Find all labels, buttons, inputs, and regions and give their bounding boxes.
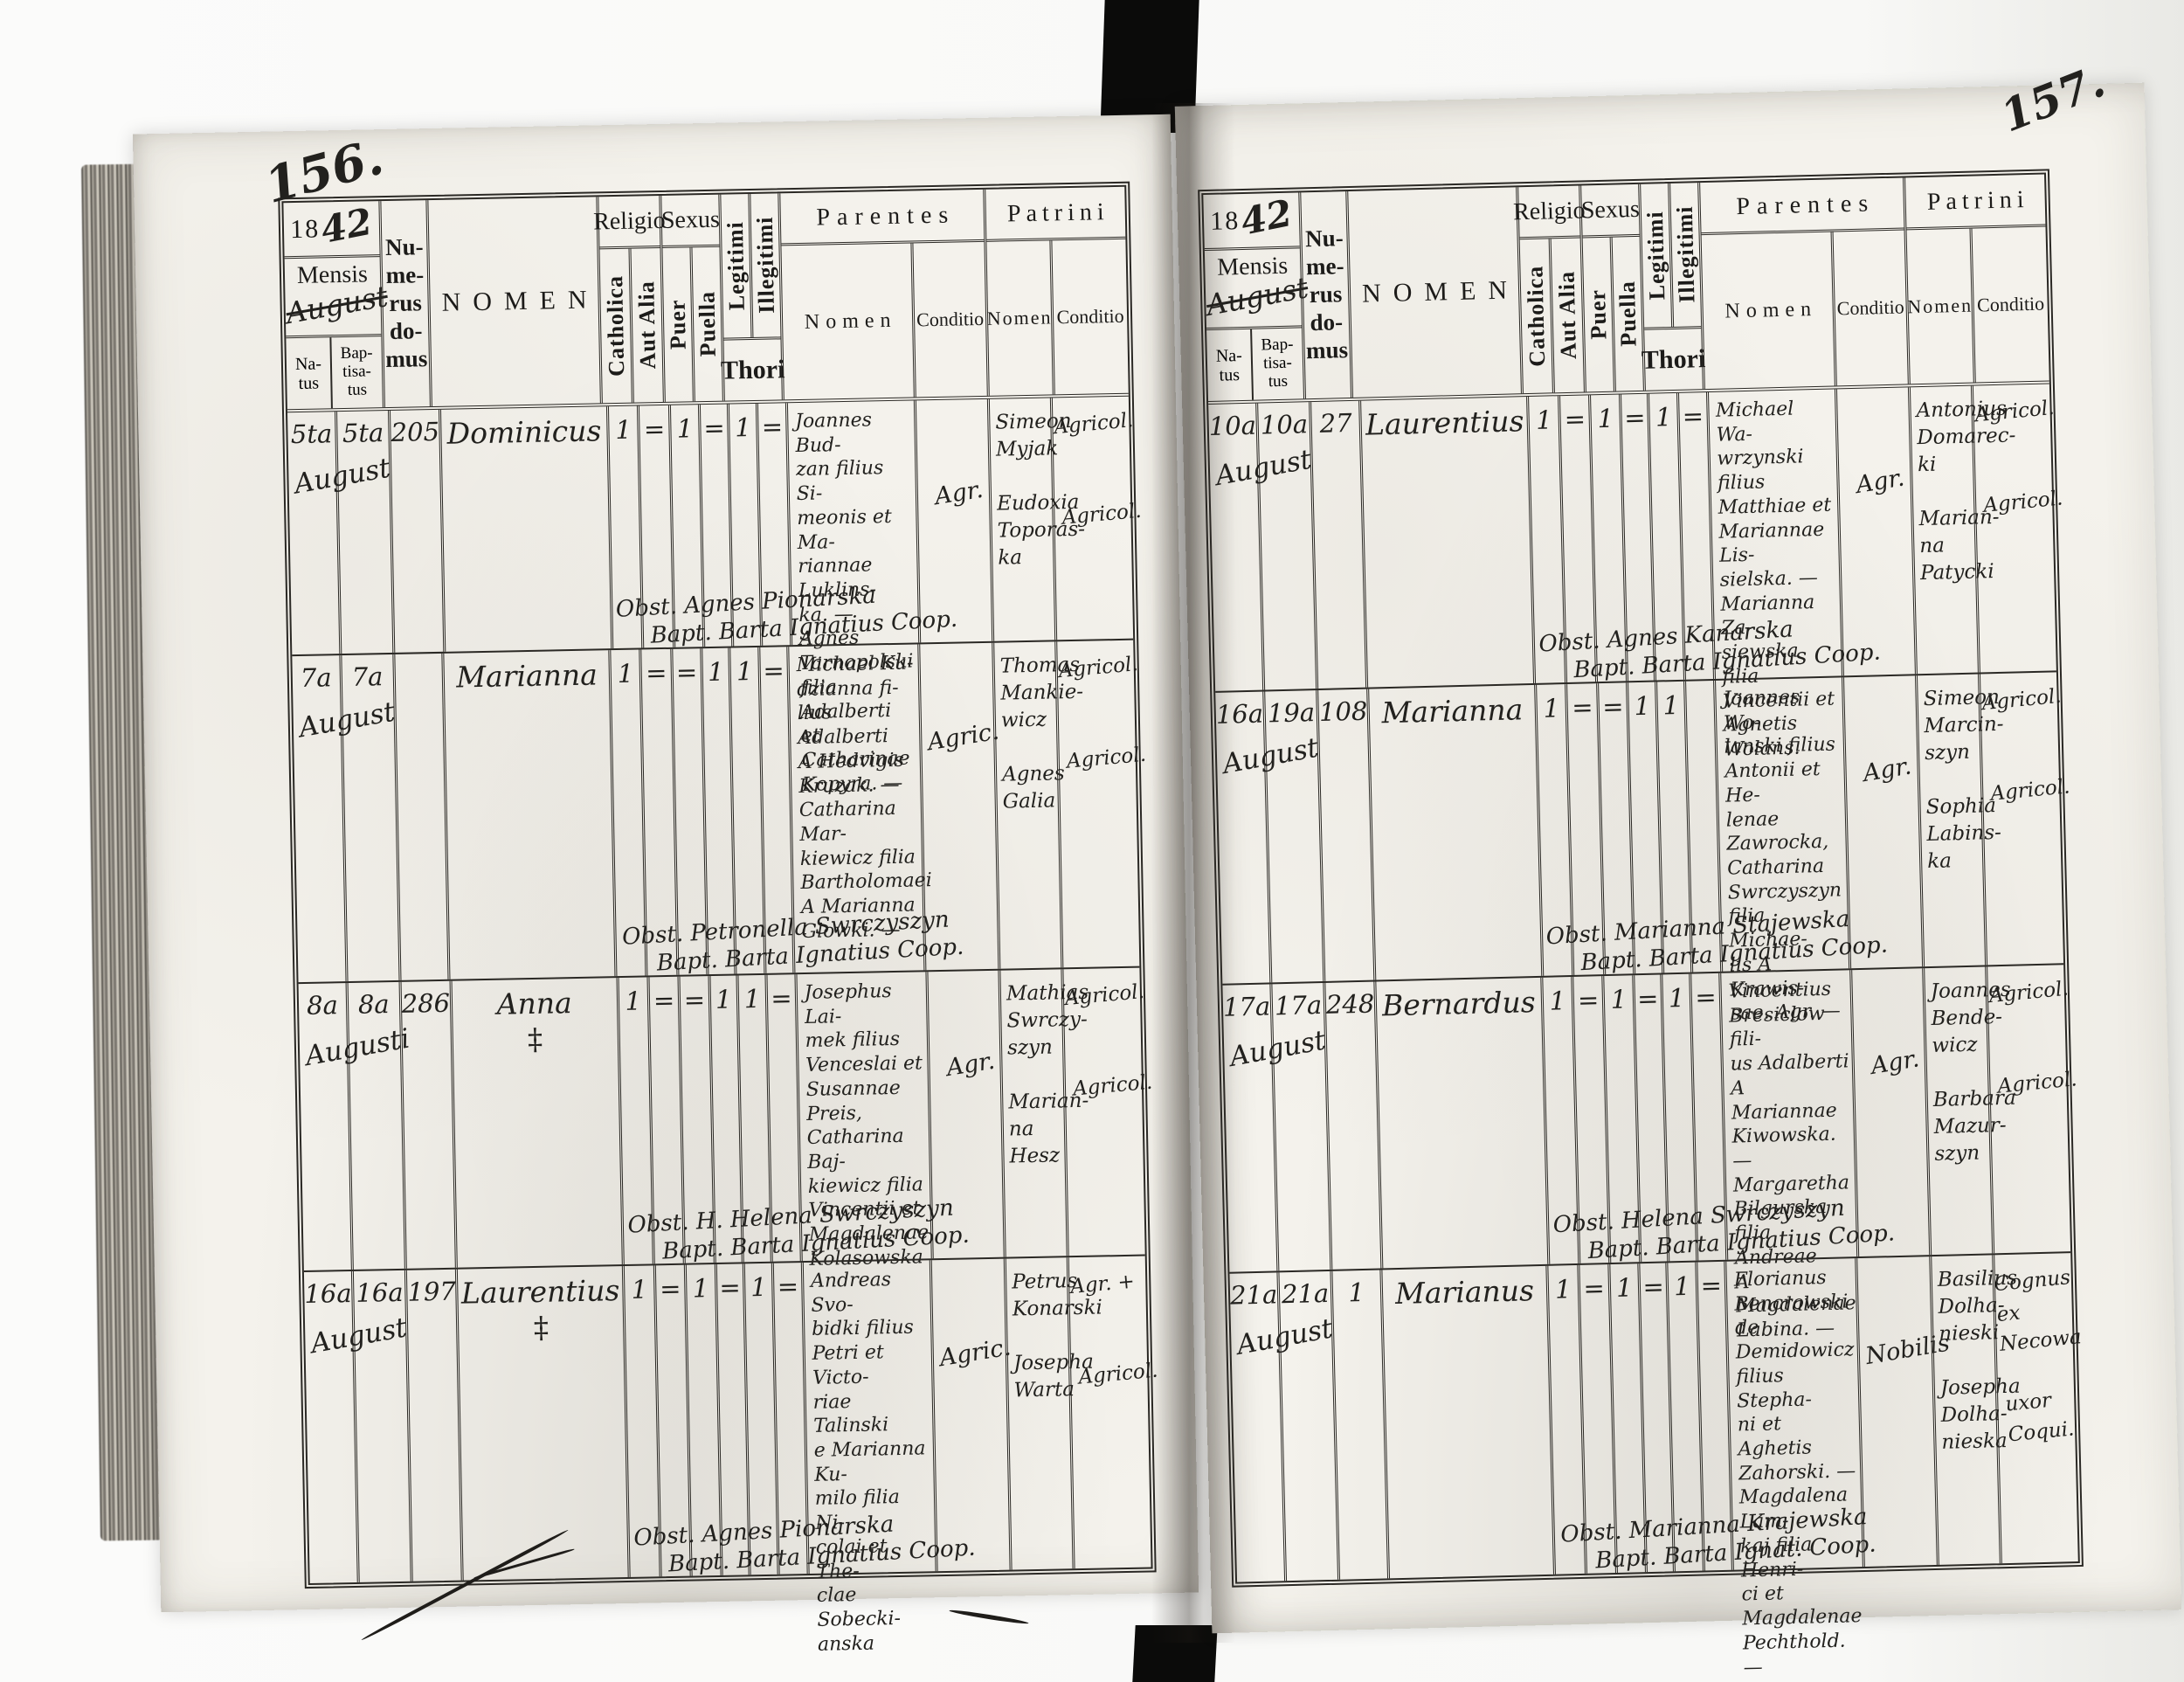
puer-mark: 1 bbox=[1610, 1263, 1638, 1303]
mensis-box: Mensis August bbox=[1205, 248, 1302, 328]
religio-label: Religio bbox=[598, 196, 660, 249]
puer-mark: = bbox=[1599, 682, 1628, 722]
legitimacy-subcolumns: Legitimi Illegitimi bbox=[1641, 183, 1701, 328]
natus-cell: 8a bbox=[299, 983, 351, 1270]
numerus-domus-cell: 27 bbox=[1309, 401, 1365, 689]
child-name: Marianus bbox=[1382, 1266, 1547, 1312]
legitimi-cell: Legitimi bbox=[721, 194, 750, 338]
numerus-domus-cell: 1 bbox=[1330, 1270, 1386, 1579]
aut-alia-mark: = bbox=[1560, 395, 1590, 434]
natus-label: Na- tus bbox=[1206, 329, 1254, 401]
puella-mark: = bbox=[1635, 975, 1661, 1014]
baptisatus-value: 8a bbox=[348, 982, 399, 1020]
patrini-conditio-cell: Cognus ex Necowa uxor Coqui. bbox=[1992, 1253, 2078, 1563]
parentes-conditio-value: Agr. bbox=[1830, 384, 1918, 502]
year-box: 18 42 bbox=[1203, 192, 1299, 251]
patrini-conditio-value: Cognus ex Necowa uxor Coqui. bbox=[1988, 1251, 2082, 1450]
nomen-cell: Marianus bbox=[1379, 1266, 1553, 1579]
natus-cell: 5ta bbox=[287, 412, 339, 654]
illegitimi-mark bbox=[1686, 681, 1713, 690]
parentes-conditio-label: Conditio bbox=[1831, 230, 1908, 385]
patrini-nomen-cell: Mathias Swrczy- szyn Marian- na Hesz bbox=[998, 969, 1066, 1256]
legitimi-label: Legitimi bbox=[722, 221, 750, 310]
natus-value: 16a bbox=[1215, 692, 1263, 730]
baptisatus-value: 16a bbox=[354, 1270, 405, 1308]
legitimi-mark: 1 bbox=[1649, 393, 1677, 433]
patrini-header-group: Patrini Nomen Conditio bbox=[1903, 175, 2049, 384]
legitimi-mark: 1 bbox=[1657, 682, 1685, 721]
numerus-domus-cell: 108 bbox=[1316, 689, 1373, 981]
illegitimi-mark: = bbox=[758, 403, 785, 442]
aut-alia-mark: = bbox=[1568, 683, 1598, 723]
natus-value: 5ta bbox=[287, 412, 335, 449]
nomen-cell: Anna ‡ bbox=[449, 978, 621, 1268]
illegitimi-mark: = bbox=[760, 647, 787, 686]
numerus-domus-value bbox=[395, 654, 442, 661]
patrini-header-group: Patrini Nomen Conditio bbox=[983, 187, 1129, 396]
parentes-nomen-label: Nomen bbox=[781, 243, 913, 399]
table-header: 18 42 Mensis August Na- tus Bap- tisa- t… bbox=[283, 187, 1128, 412]
table-row: 21a 21a 1 Marianus 1 = 1 = 1 = Fl bbox=[1229, 1251, 2077, 1582]
parentes-subcolumns: Nomen Conditio bbox=[781, 242, 986, 399]
mensis-box: Mensis August bbox=[285, 257, 382, 336]
book-spine-bottom bbox=[1132, 1625, 1217, 1682]
aut-alia-cell: Aut Alia bbox=[1549, 239, 1584, 393]
patrini-conditio-value: Agricol. Agricol. bbox=[1976, 670, 2064, 810]
patrini-nomen-cell: Petrus Konarski Josepha Warta bbox=[1004, 1257, 1073, 1569]
catholica-cell: Catholica bbox=[599, 249, 631, 404]
patrini-names: Petrus Konarski Josepha Warta bbox=[1006, 1257, 1069, 1405]
catholica-mark: 1 bbox=[1537, 684, 1566, 723]
patrini-conditio-value: Agr. + Agricol. bbox=[1065, 1254, 1152, 1393]
nomen-cell: Laurentius ‡ bbox=[455, 1266, 628, 1581]
numerus-domus-value: 1 bbox=[1332, 1270, 1380, 1307]
parentes-conditio-label: Conditio bbox=[911, 242, 987, 398]
legitimi-mark: 1 bbox=[1662, 974, 1690, 1014]
patrini-names: Thomas Mankie- wicz Agnes Galia bbox=[994, 641, 1058, 816]
natus-value: 8a bbox=[299, 983, 347, 1021]
patrini-conditio-value: Agricol. Agricol. bbox=[1053, 638, 1140, 777]
parentes-subcolumns: Nomen Conditio bbox=[1702, 230, 1908, 389]
baptisatus-cell: 5ta bbox=[335, 411, 392, 654]
numerus-domus-cell: 286 bbox=[398, 981, 454, 1269]
natus-label: Na- tus bbox=[286, 337, 333, 409]
scanned-register-spread: 156. 18 42 Mensis August Na- tus Bap- ti… bbox=[0, 0, 2184, 1682]
patrini-nomen-label: Nomen bbox=[986, 240, 1052, 395]
right-page: 157. 18 42 Mensis August Na- tus Bap- ti… bbox=[1175, 83, 2181, 1634]
sexus-subcolumns: Puer Puella bbox=[662, 247, 722, 402]
rows: 5ta 5ta 205 Dominicus 1 = 1 = 1 = bbox=[287, 397, 1151, 1583]
natus-cell: 16a bbox=[304, 1271, 357, 1583]
child-name: Laurentius bbox=[1362, 397, 1528, 442]
puella-mark: = bbox=[701, 405, 727, 444]
nomen-column-label: NOMEN bbox=[1345, 187, 1521, 398]
natus-cell: 17a bbox=[1222, 984, 1276, 1271]
patrini-conditio-value: Agricol. Agricol. bbox=[1969, 382, 2057, 522]
patrini-nomen-cell: Antonius Domarec- ki Marian- na Patycki bbox=[1908, 386, 1978, 675]
catholica-mark: 1 bbox=[1549, 1265, 1578, 1305]
numerus-domus-cell bbox=[392, 654, 448, 980]
register-table: 18 42 Mensis August Na- tus Bap- tisa- t… bbox=[278, 182, 1156, 1589]
parentes-conditio-value: Agr. bbox=[1845, 964, 1932, 1081]
puer-mark: 1 bbox=[1605, 975, 1633, 1014]
year-handwritten: 42 bbox=[317, 200, 376, 252]
religio-label: Religio bbox=[1518, 186, 1579, 240]
puer-label: Puer bbox=[1585, 289, 1612, 340]
parentes-names: Florianus Bencrowski de Demidowicz filiu… bbox=[1726, 1258, 1865, 1680]
patrini-label: Patrini bbox=[985, 187, 1125, 242]
illegitimi-mark: = bbox=[1679, 392, 1707, 432]
legitimi-label: Legitimi bbox=[1641, 211, 1669, 301]
catholica-label: Catholica bbox=[602, 275, 630, 377]
legitimi-cell: Legitimi bbox=[1641, 183, 1671, 328]
parentes-label: Parentes bbox=[780, 190, 984, 246]
date-split: Na- tus Bap- tisa- tus bbox=[286, 334, 382, 409]
child-name: Marianna bbox=[1369, 685, 1535, 730]
aut-alia-mark: = bbox=[1573, 976, 1602, 1015]
parentes-header-group: Parentes Nomen Conditio bbox=[778, 190, 986, 399]
patrini-nomen-cell: Joannes Bende- wicz Barbara Mazur- szyn bbox=[1922, 966, 1992, 1255]
parentes-nomen-label: Nomen bbox=[1702, 232, 1835, 390]
parentes-names: Andreas Svo- bidki filius Petri et Victo… bbox=[804, 1260, 937, 1657]
parentes-conditio-value: Agr. bbox=[921, 966, 1007, 1083]
natus-value: 17a bbox=[1222, 984, 1270, 1021]
patrini-conditio-label: Conditio bbox=[1969, 227, 2049, 383]
natus-value: 10a bbox=[1208, 404, 1256, 441]
numerus-domus-value: 205 bbox=[390, 410, 439, 447]
natus-value: 7a bbox=[292, 655, 340, 693]
patrini-conditio-label: Conditio bbox=[1049, 239, 1128, 395]
patrini-names: Simeon Marcin- szyn Sophia Labins- ka bbox=[1918, 675, 1983, 876]
register-table: 18 42 Mensis August Na- tus Bap- tisa- t… bbox=[1198, 169, 2084, 1587]
patrini-nomen-cell: Basilius Dolha- nieski Josepha Dolha- ni… bbox=[1929, 1255, 2000, 1565]
puella-mark: 1 bbox=[1628, 682, 1655, 722]
aut-alia-mark: = bbox=[642, 649, 671, 689]
deceased-mark: ‡ bbox=[459, 1309, 624, 1347]
table-row: 16a 16a 197 Laurentius ‡ 1 = 1 = 1 = bbox=[304, 1255, 1151, 1583]
religio-subcolumns: Catholica Aut Alia bbox=[1520, 239, 1584, 394]
puer-mark: = bbox=[681, 976, 708, 1015]
natus-cell: 16a bbox=[1215, 692, 1269, 984]
table-row: 8a 8a 286 Anna ‡ 1 = = 1 1 = Josep bbox=[299, 966, 1145, 1270]
baptisatus-value: 19a bbox=[1265, 690, 1317, 728]
numerus-domus-value: 108 bbox=[1318, 689, 1367, 727]
patrini-conditio-cell: Agr. + Agricol. bbox=[1067, 1256, 1151, 1569]
patrini-conditio-cell: Agricol. Agricol. bbox=[1985, 965, 2070, 1253]
puella-label: Puella bbox=[694, 291, 721, 357]
illegitimi-cell: Illegitimi bbox=[748, 193, 780, 337]
puer-mark: 1 bbox=[671, 405, 699, 444]
table-row: 16a 19a 108 Marianna 1 = = 1 1 J bbox=[1215, 670, 2063, 983]
parentes-names: Michael Ku- dzianna fi- lius Adalberti A… bbox=[789, 644, 923, 944]
natus-cell: 21a bbox=[1229, 1272, 1284, 1582]
nomen-cell: Marianna bbox=[442, 650, 615, 979]
illegitimi-label: Illegitimi bbox=[751, 217, 779, 315]
aut-alia-cell: Aut Alia bbox=[628, 248, 662, 403]
patrini-names: Basilius Dolha- nieski Josepha Dolha- ni… bbox=[1932, 1255, 1997, 1457]
puella-mark: = bbox=[1640, 1263, 1666, 1302]
puella-cell: Puella bbox=[1610, 237, 1643, 391]
patrini-conditio-cell: Agricol. Agricol. bbox=[1054, 640, 1139, 968]
patrini-names: Mathias Swrczy- szyn Marian- na Hesz bbox=[1000, 969, 1064, 1171]
child-name: Dominicus bbox=[441, 406, 607, 451]
nomen-cell: Bernardus bbox=[1373, 978, 1547, 1269]
dates-header-group: 18 42 Mensis August Na- tus Bap- tisa- t… bbox=[283, 201, 382, 409]
numerus-domus-value: 27 bbox=[1311, 401, 1359, 439]
sexus-header-group: Sexus Puer Puella bbox=[1579, 184, 1643, 392]
sexus-subcolumns: Puer Puella bbox=[1583, 237, 1643, 392]
puer-mark: = bbox=[673, 648, 701, 688]
aut-alia-mark: = bbox=[639, 405, 668, 445]
nomen-cell: Dominicus bbox=[439, 406, 611, 652]
legitimi-mark: 1 bbox=[745, 1263, 772, 1303]
parentes-header-group: Parentes Nomen Conditio bbox=[1697, 177, 1908, 389]
date-split: Na- tus Bap- tisa- tus bbox=[1206, 325, 1303, 401]
thori-label: Thori bbox=[1644, 326, 1703, 391]
baptisatus-label: Bap- tisa- tus bbox=[331, 336, 382, 408]
numerus-domus-cell: 197 bbox=[404, 1270, 461, 1582]
catholica-mark: 1 bbox=[625, 1265, 653, 1305]
legitimi-mark: 1 bbox=[1669, 1263, 1696, 1302]
illegitimi-mark: = bbox=[774, 1263, 801, 1302]
aut-alia-mark: = bbox=[656, 1265, 685, 1305]
numerus-domus-label: Nu- me- rus do- mus bbox=[1298, 191, 1351, 398]
natus-value: 16a bbox=[304, 1271, 352, 1309]
legitimi-mark: 1 bbox=[729, 404, 757, 443]
patrini-nomen-cell: Simeon Marcin- szyn Sophia Labins- ka bbox=[1915, 675, 1985, 967]
year-box: 18 42 bbox=[283, 201, 379, 259]
numerus-domus-value: 286 bbox=[401, 981, 450, 1019]
sexus-header-group: Sexus Puer Puella bbox=[659, 195, 722, 402]
parentes-conditio-value: Agr. bbox=[1837, 672, 1925, 790]
parentes-label: Parentes bbox=[1700, 177, 1904, 235]
baptisatus-value: 5ta bbox=[337, 411, 389, 448]
puella-cell: Puella bbox=[689, 247, 722, 402]
patrini-subcolumns: Nomen Conditio bbox=[986, 239, 1128, 396]
rows: 10a 10a 27 Laurentius 1 = 1 = 1 = bbox=[1208, 384, 2078, 1582]
catholica-mark: 1 bbox=[611, 650, 639, 689]
puella-mark: = bbox=[716, 1263, 743, 1303]
puella-mark: = bbox=[1621, 394, 1648, 433]
baptisatus-value: 21a bbox=[1280, 1271, 1331, 1309]
puer-cell: Puer bbox=[662, 247, 692, 402]
puella-mark: 1 bbox=[710, 975, 736, 1014]
sexus-label: Sexus bbox=[661, 195, 719, 248]
puella-label: Puella bbox=[1614, 280, 1641, 347]
thori-header-group: Legitimi Illegitimi Thori bbox=[718, 193, 782, 400]
patrini-conditio-cell: Agricol. Agricol. bbox=[1061, 968, 1144, 1256]
natus-cell: 7a bbox=[292, 655, 345, 982]
puer-cell: Puer bbox=[1583, 238, 1614, 392]
pen-stroke bbox=[949, 1609, 1029, 1625]
puer-mark: 1 bbox=[687, 1264, 715, 1304]
sexus-label: Sexus bbox=[1581, 184, 1639, 239]
aut-alia-label: Aut Alia bbox=[633, 280, 661, 370]
baptisatus-value: 10a bbox=[1258, 402, 1310, 440]
aut-alia-mark: = bbox=[649, 977, 678, 1016]
nomen-cell: Laurentius bbox=[1359, 397, 1534, 688]
table-row: 17a 17a 248 Bernardus 1 = 1 = 1 = bbox=[1222, 963, 2070, 1271]
patrini-nomen-label: Nomen bbox=[1907, 229, 1973, 384]
aut-alia-mark: = bbox=[1579, 1264, 1608, 1304]
dates-header-group: 18 42 Mensis August Na- tus Bap- tisa- t… bbox=[1203, 192, 1303, 401]
religio-header-group: Religio Catholica Aut Alia bbox=[596, 196, 663, 403]
left-page: 156. 18 42 Mensis August Na- tus Bap- ti… bbox=[133, 114, 1199, 1612]
child-name: Anna bbox=[452, 978, 617, 1022]
numerus-domus-label: Nu- me- rus do- mus bbox=[378, 200, 430, 407]
puella-mark: 1 bbox=[702, 648, 729, 688]
religio-subcolumns: Catholica Aut Alia bbox=[599, 248, 662, 403]
patrini-conditio-cell: Agricol. Agricol. bbox=[1050, 397, 1133, 640]
baptisatus-value: 7a bbox=[342, 654, 393, 692]
year-printed: 18 bbox=[1210, 206, 1241, 237]
year-printed: 18 bbox=[290, 214, 321, 245]
child-name: Marianna bbox=[445, 650, 610, 695]
catholica-mark: 1 bbox=[1543, 977, 1572, 1016]
catholica-mark: 1 bbox=[619, 977, 647, 1016]
religio-header-group: Religio Catholica Aut Alia bbox=[1516, 186, 1584, 394]
table-row: 5ta 5ta 205 Dominicus 1 = 1 = 1 = bbox=[287, 397, 1133, 654]
patrini-label: Patrini bbox=[1905, 175, 2045, 231]
page-number: 157. bbox=[1994, 55, 2112, 142]
puer-label: Puer bbox=[664, 300, 691, 350]
patrini-names: Simeon Myjak Eudoxia Toporas- ka bbox=[990, 398, 1054, 572]
legitimacy-subcolumns: Legitimi Illegitimi bbox=[721, 193, 780, 337]
thori-label: Thori bbox=[723, 336, 781, 400]
natus-cell: 10a bbox=[1208, 404, 1262, 691]
illegitimi-mark: = bbox=[768, 974, 795, 1014]
numerus-domus-cell: 248 bbox=[1323, 982, 1380, 1270]
illegitimi-mark: = bbox=[1692, 973, 1719, 1013]
catholica-mark: 1 bbox=[1530, 396, 1559, 435]
patrini-conditio-value: Agricol. Agricol. bbox=[1059, 966, 1146, 1104]
aut-alia-label: Aut Alia bbox=[1553, 271, 1581, 360]
nomen-cell: Marianna bbox=[1366, 685, 1541, 980]
catholica-mark: 1 bbox=[609, 406, 638, 446]
illegitimi-mark: = bbox=[1697, 1262, 1724, 1301]
patrini-conditio-value: Agricol. Agricol. bbox=[1048, 394, 1136, 533]
legitimi-mark: 1 bbox=[731, 647, 758, 687]
catholica-cell: Catholica bbox=[1520, 239, 1552, 393]
baptisatus-label: Bap- tisa- tus bbox=[1252, 328, 1303, 399]
illegitimi-cell: Illegitimi bbox=[1668, 183, 1701, 327]
table-row: 7a 7a Marianna 1 = = 1 1 = Micha bbox=[292, 639, 1139, 982]
year-handwritten: 42 bbox=[1237, 191, 1296, 244]
nomen-column-label: NOMEN bbox=[425, 197, 599, 406]
numerus-domus-cell: 205 bbox=[388, 410, 443, 653]
child-name: Laurentius bbox=[458, 1266, 623, 1311]
parentes-conditio-value: Nobilis bbox=[1850, 1252, 1939, 1370]
patrini-subcolumns: Nomen Conditio bbox=[1907, 227, 2049, 384]
puer-mark: 1 bbox=[1591, 395, 1620, 434]
illegitimi-label: Illegitimi bbox=[1671, 206, 1700, 304]
numerus-domus-value: 197 bbox=[407, 1270, 456, 1307]
baptisatus-value: 17a bbox=[1273, 983, 1324, 1021]
legitimi-mark: 1 bbox=[738, 975, 765, 1014]
parentes-conditio-value: Agr. bbox=[909, 395, 996, 512]
numerus-domus-value: 248 bbox=[1325, 982, 1374, 1020]
catholica-label: Catholica bbox=[1522, 265, 1551, 367]
table-row: 10a 10a 27 Laurentius 1 = 1 = 1 = bbox=[1208, 384, 2056, 690]
parentes-conditio-value: Agric. bbox=[925, 1255, 1013, 1372]
patrini-nomen-cell: Thomas Mankie- wicz Agnes Galia bbox=[992, 641, 1061, 968]
patrini-nomen-cell: Simeon Myjak Eudoxia Toporas- ka bbox=[987, 398, 1054, 640]
patrini-conditio-value: Agricol. Agricol. bbox=[1983, 963, 2071, 1103]
natus-value: 21a bbox=[1229, 1272, 1277, 1310]
parentes-conditio-value: Agric. bbox=[913, 639, 1000, 756]
patrini-conditio-cell: Agricol. Agricol. bbox=[1971, 384, 2056, 672]
child-name: Bernardus bbox=[1376, 978, 1541, 1023]
deceased-mark: ‡ bbox=[453, 1021, 618, 1059]
patrini-names: Joannes Bende- wicz Barbara Mazur- szyn bbox=[1925, 966, 1990, 1168]
patrini-names: Antonius Domarec- ki Marian- na Patycki bbox=[1911, 386, 1976, 588]
thori-header-group: Legitimi Illegitimi Thori bbox=[1638, 183, 1703, 391]
table-header: 18 42 Mensis August Na- tus Bap- tisa- t… bbox=[1203, 175, 2049, 405]
patrini-conditio-cell: Agricol. Agricol. bbox=[1978, 672, 2063, 965]
